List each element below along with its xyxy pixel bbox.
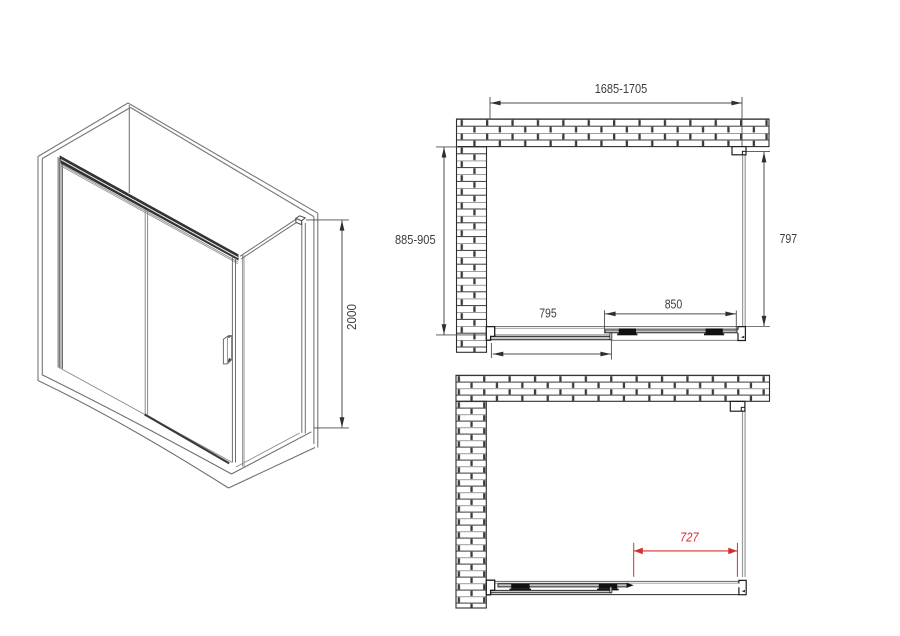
- svg-text:885-905: 885-905: [395, 232, 436, 247]
- svg-text:2000: 2000: [344, 304, 359, 330]
- svg-text:850: 850: [665, 297, 683, 312]
- svg-text:727: 727: [680, 530, 699, 545]
- svg-text:797: 797: [780, 231, 798, 246]
- svg-text:795: 795: [539, 306, 557, 321]
- svg-text:1685-1705: 1685-1705: [595, 81, 648, 96]
